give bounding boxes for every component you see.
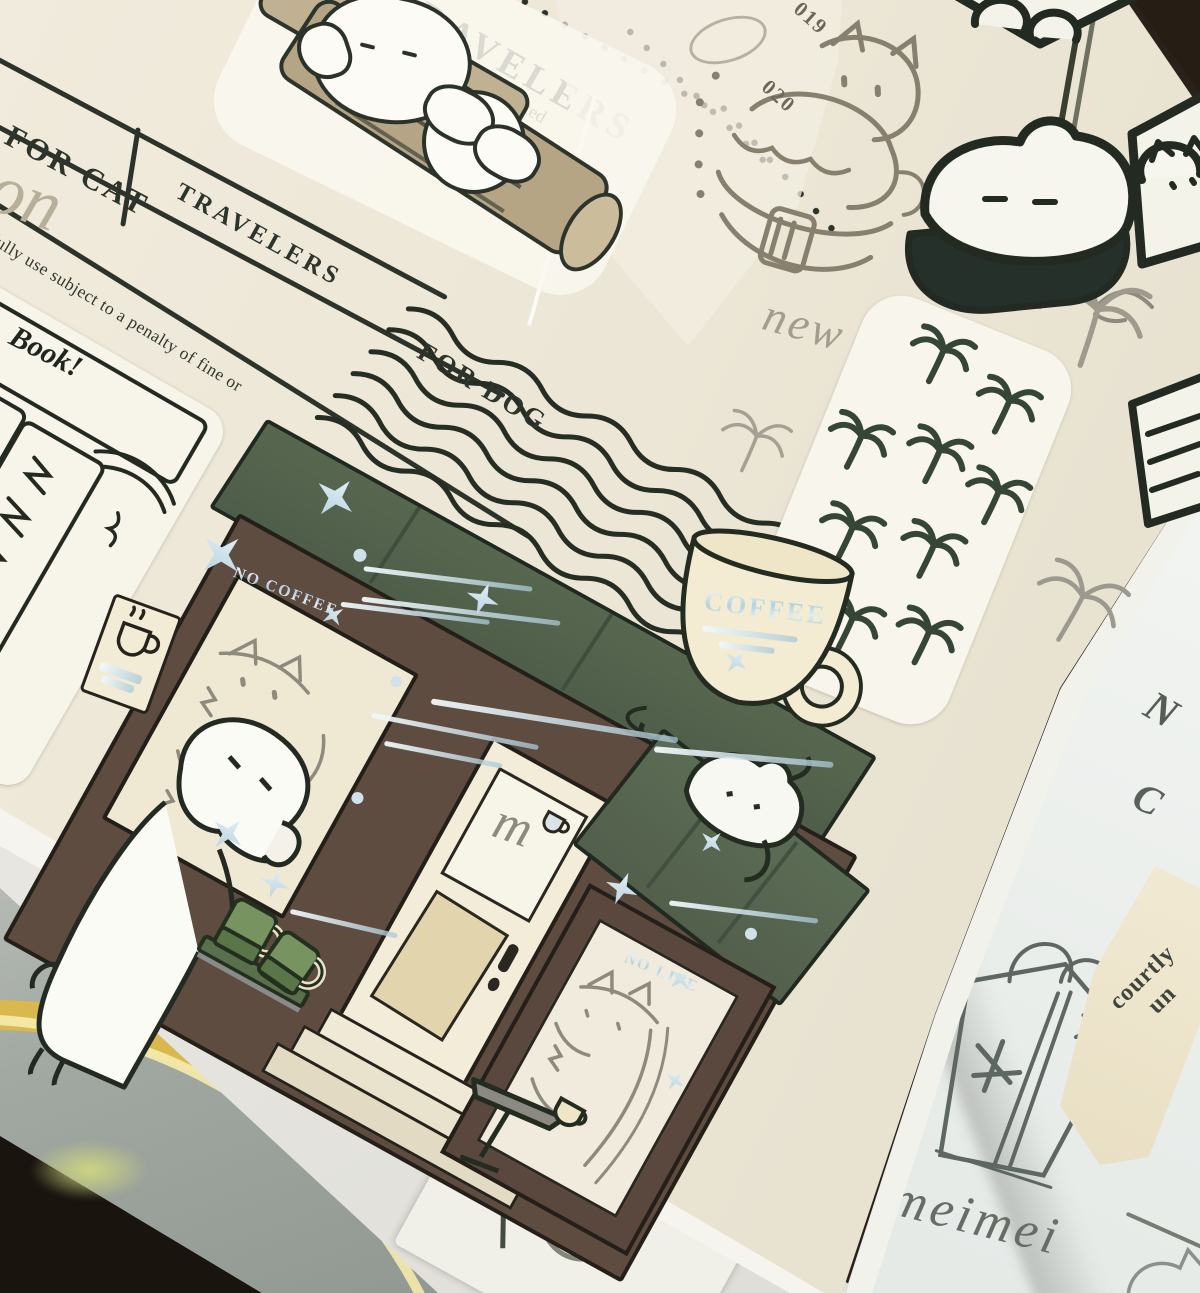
right-page-partial-letter-top: N (1136, 682, 1186, 739)
door-handle-knob (485, 976, 501, 994)
reading-cats-stickers (880, 0, 1200, 584)
door-window-scribble: m (486, 792, 541, 860)
right-page-partial-letter-bottom: C (1125, 772, 1170, 826)
dog-on-log-sticker (210, 0, 690, 300)
door-cup-doodle (532, 802, 579, 847)
cat-sketch-partial (1118, 1238, 1200, 1293)
photo-canvas: N C courtly un meimei (0, 0, 1200, 1293)
door-window: m (440, 767, 588, 923)
